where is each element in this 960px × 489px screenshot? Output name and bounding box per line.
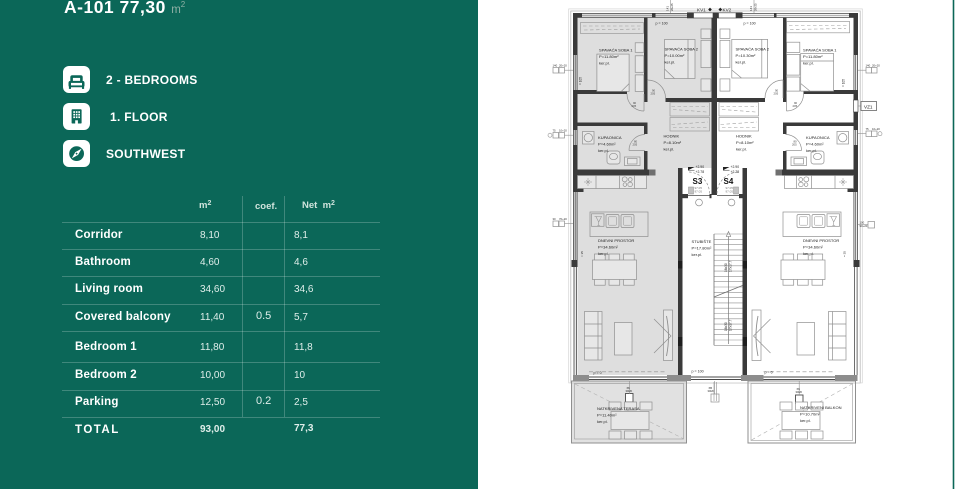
svg-text:ker.pl.: ker.pl. bbox=[800, 418, 811, 423]
svg-text:P=11.40m²: P=11.40m² bbox=[597, 413, 617, 418]
svg-text:P=10.30m²: P=10.30m² bbox=[736, 53, 757, 58]
svg-text:SPAVAĆA SOBA 2: SPAVAĆA SOBA 2 bbox=[736, 47, 770, 52]
svg-text:P=10.70m²: P=10.70m² bbox=[800, 412, 821, 417]
svg-text:= 35: = 35 bbox=[580, 251, 584, 257]
svg-text:P=8.10m²: P=8.10m² bbox=[736, 140, 754, 145]
svg-text:17x17.7: 17x17.7 bbox=[729, 319, 733, 331]
svg-text:ker.pl.: ker.pl. bbox=[803, 251, 814, 256]
svg-text:S4: S4 bbox=[724, 177, 734, 186]
svg-text:ker.pl.: ker.pl. bbox=[736, 147, 747, 152]
svg-text:KV1: KV1 bbox=[697, 8, 706, 13]
svg-text:97.05: 97.05 bbox=[726, 189, 734, 193]
svg-text:ker.pl.: ker.pl. bbox=[692, 252, 703, 257]
svg-text:ker.pl.: ker.pl. bbox=[803, 61, 814, 66]
svg-text:70+20: 70+20 bbox=[559, 217, 567, 221]
svg-text:97.05: 97.05 bbox=[695, 189, 703, 193]
svg-text:KUPAONICA: KUPAONICA bbox=[598, 135, 622, 140]
svg-text:P=34.60m²: P=34.60m² bbox=[803, 245, 824, 250]
svg-text:SPAVAĆA SOBA 2: SPAVAĆA SOBA 2 bbox=[665, 47, 699, 52]
svg-text:+2.90: +2.90 bbox=[696, 165, 705, 169]
svg-text:16x30: 16x30 bbox=[724, 322, 728, 331]
svg-text:P=11.80m²: P=11.80m² bbox=[599, 54, 619, 59]
svg-text:10+20: 10+20 bbox=[559, 128, 567, 132]
svg-text:+2.90: +2.90 bbox=[731, 165, 740, 169]
svg-text:= 35: = 35 bbox=[843, 251, 847, 257]
svg-text:DNEVNI PROSTOR: DNEVNI PROSTOR bbox=[803, 238, 839, 243]
svg-text:p = 0: p = 0 bbox=[765, 371, 773, 375]
svg-text:p = 100: p = 100 bbox=[692, 370, 704, 374]
svg-text:ker.pl.: ker.pl. bbox=[598, 148, 609, 153]
svg-text:SPAVAĆA SOBA 1: SPAVAĆA SOBA 1 bbox=[599, 48, 633, 53]
svg-text:ker.pl.: ker.pl. bbox=[598, 251, 609, 256]
svg-text:205: 205 bbox=[774, 92, 779, 96]
svg-text:205: 205 bbox=[793, 104, 798, 108]
svg-text:30/20: 30/20 bbox=[708, 389, 715, 393]
svg-text:140: 140 bbox=[553, 63, 558, 67]
svg-text:20+20: 20+20 bbox=[559, 63, 567, 67]
svg-text:KV2: KV2 bbox=[723, 8, 732, 13]
svg-text:ker.pl.: ker.pl. bbox=[597, 419, 608, 424]
svg-text:P=17.80m²: P=17.80m² bbox=[692, 246, 713, 251]
svg-text:ker.pl.: ker.pl. bbox=[806, 148, 817, 153]
svg-text:205: 205 bbox=[792, 143, 797, 147]
svg-text:P=4.60m²: P=4.60m² bbox=[598, 142, 616, 147]
svg-text:HODNIK: HODNIK bbox=[736, 134, 752, 139]
svg-text:S3: S3 bbox=[693, 177, 703, 186]
svg-text:STUBIŠTE: STUBIŠTE bbox=[692, 239, 712, 244]
svg-text:140: 140 bbox=[866, 63, 871, 67]
svg-text:= 105: = 105 bbox=[579, 77, 583, 85]
svg-text:NATKRIVENA TERASA: NATKRIVENA TERASA bbox=[597, 406, 640, 411]
svg-text:p = 100: p = 100 bbox=[744, 22, 756, 26]
svg-text:75: 75 bbox=[866, 127, 870, 131]
svg-text:P=4.60m²: P=4.60m² bbox=[806, 142, 824, 147]
svg-text:HODNIK: HODNIK bbox=[664, 134, 680, 139]
svg-text:+2.78: +2.78 bbox=[696, 170, 705, 174]
svg-text:KUPAONICA: KUPAONICA bbox=[806, 135, 830, 140]
svg-text:141: 141 bbox=[666, 6, 670, 11]
svg-text:16x30: 16x30 bbox=[724, 263, 728, 272]
svg-text:DNEVNI PROSTOR: DNEVNI PROSTOR bbox=[598, 238, 634, 243]
svg-text:10+20: 10+20 bbox=[872, 127, 880, 131]
svg-text:ker.pl.: ker.pl. bbox=[665, 60, 676, 65]
svg-text:141: 141 bbox=[749, 6, 753, 11]
svg-text:p = 0: p = 0 bbox=[594, 371, 602, 375]
svg-text:30: 30 bbox=[553, 217, 557, 221]
svg-text:SPAVAĆA SOBA 1: SPAVAĆA SOBA 1 bbox=[803, 48, 837, 53]
svg-text:90+20: 90+20 bbox=[860, 224, 868, 228]
svg-text:VZ1: VZ1 bbox=[864, 104, 873, 109]
svg-text:205: 205 bbox=[632, 104, 637, 108]
svg-text:ker.pl.: ker.pl. bbox=[664, 147, 675, 152]
svg-text:p = 100: p = 100 bbox=[656, 22, 668, 26]
svg-text:20+20: 20+20 bbox=[872, 63, 880, 67]
svg-text:P=34.60m²: P=34.60m² bbox=[598, 245, 619, 250]
svg-text:+2.78: +2.78 bbox=[731, 170, 740, 174]
svg-text:P=11.80m²: P=11.80m² bbox=[803, 54, 823, 59]
svg-text:P=10.00m²: P=10.00m² bbox=[665, 53, 686, 58]
svg-text:ker.pl.: ker.pl. bbox=[599, 61, 610, 66]
svg-text:205: 205 bbox=[633, 143, 638, 147]
svg-text:205: 205 bbox=[651, 92, 656, 96]
svg-text:P=8.10m²: P=8.10m² bbox=[664, 140, 682, 145]
svg-text:NATKRIVENI BALKON: NATKRIVENI BALKON bbox=[800, 405, 842, 410]
svg-text:17x17.7: 17x17.7 bbox=[729, 260, 733, 272]
svg-text:75: 75 bbox=[553, 128, 557, 132]
svg-text:= 105: = 105 bbox=[842, 79, 846, 87]
svg-text:ker.pl.: ker.pl. bbox=[736, 60, 747, 65]
